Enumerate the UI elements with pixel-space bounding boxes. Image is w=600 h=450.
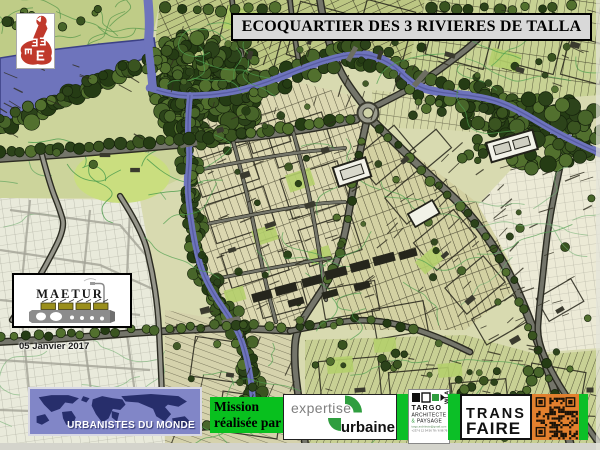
svg-text:+237 6 12 34 56 78 / 6 98 76 5: +237 6 12 34 56 78 / 6 98 76 54 32 — [412, 429, 450, 433]
svg-text:MAETUR: MAETUR — [36, 287, 104, 301]
svg-text:urbaine: urbaine — [341, 419, 395, 436]
svg-text:TARGO: TARGO — [412, 403, 442, 412]
svg-text:expertise: expertise — [291, 400, 351, 416]
